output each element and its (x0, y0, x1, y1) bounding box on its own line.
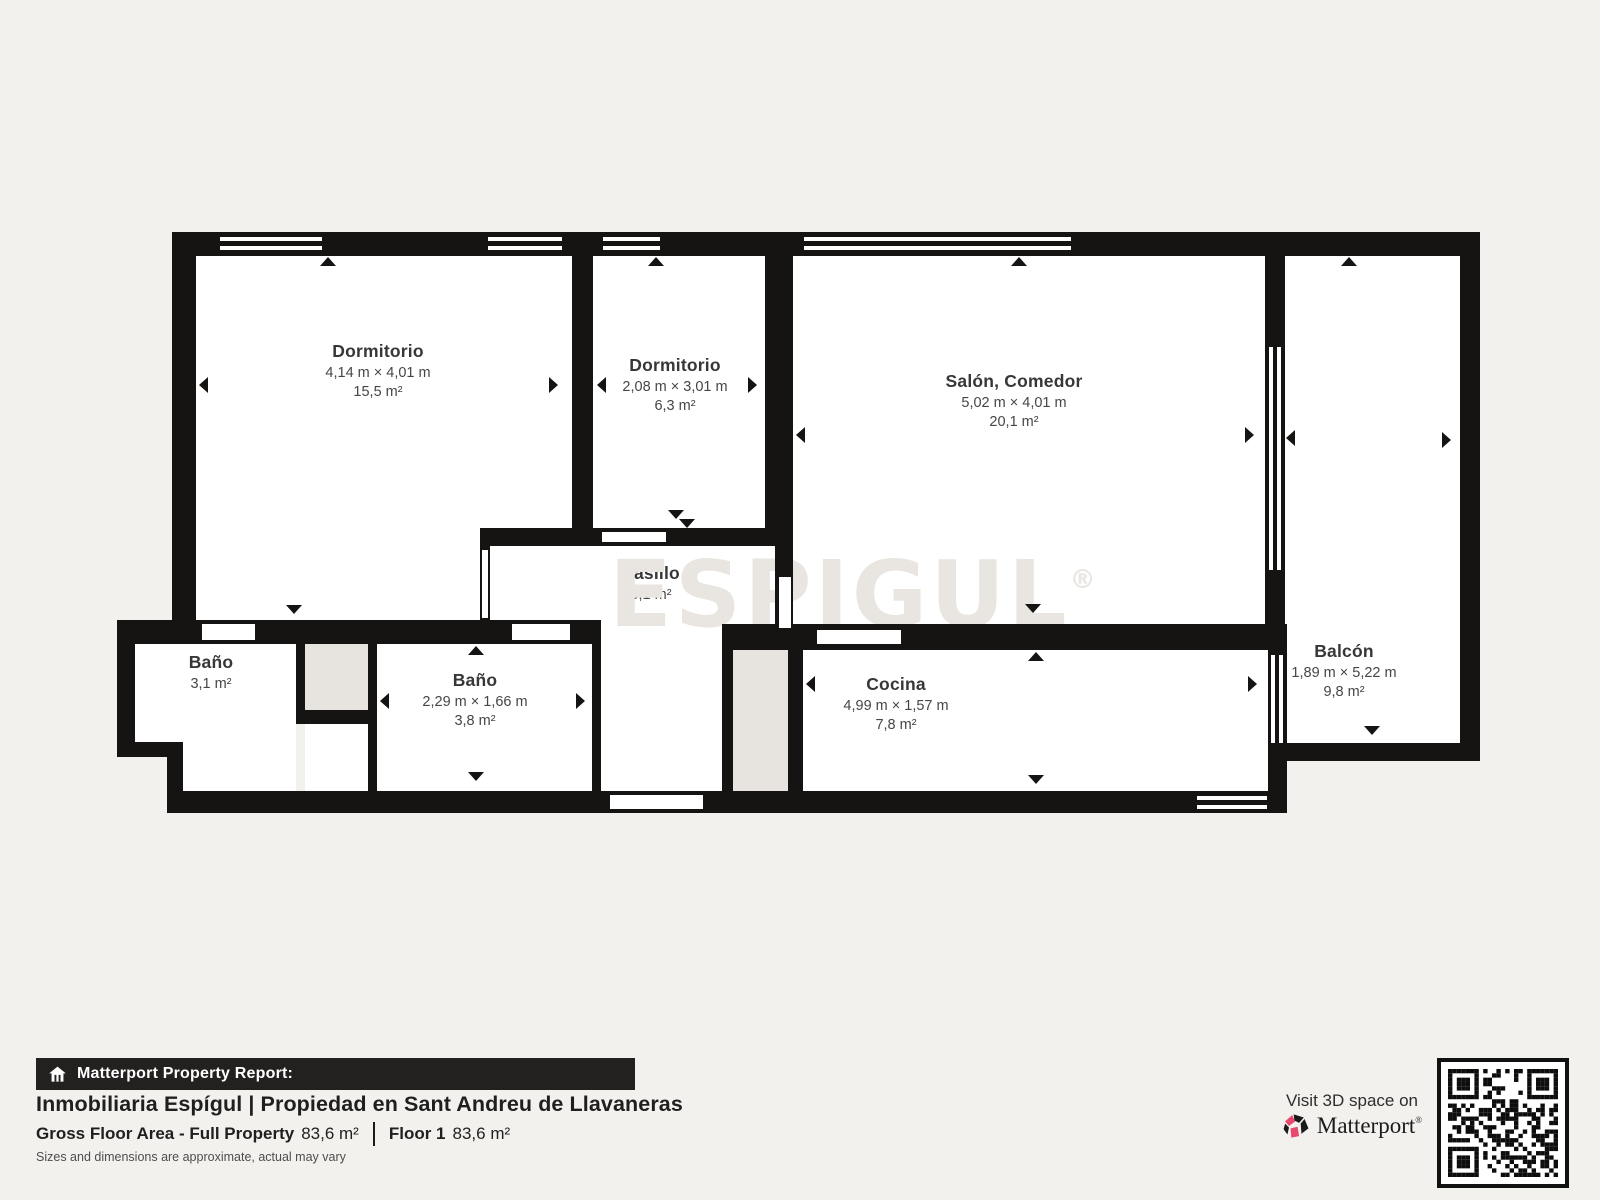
dimension-arrow (679, 519, 695, 528)
dimension-arrow (748, 377, 757, 393)
duct-shaft-2 (733, 650, 788, 791)
disclaimer-text: Sizes and dimensions are approximate, ac… (36, 1150, 346, 1164)
dimension-arrow (1286, 430, 1295, 446)
dimension-arrow (1341, 257, 1357, 266)
dimension-arrow (380, 693, 389, 709)
balcony-sliding-door (1271, 655, 1283, 743)
label-bano-1: Baño 3,1 m² (189, 652, 234, 692)
label-salon-comedor: Salón, Comedor 5,02 m × 4,01 m 20,1 m² (946, 371, 1083, 430)
wall (296, 710, 377, 724)
dimension-arrow (796, 427, 805, 443)
window (1197, 796, 1267, 809)
wall (592, 620, 601, 791)
dimension-arrow (549, 377, 558, 393)
door-opening (815, 628, 903, 646)
wall (167, 791, 1287, 813)
wall (172, 232, 196, 644)
dimension-arrow (1025, 604, 1041, 613)
door-opening (600, 530, 668, 544)
wall (368, 620, 377, 791)
floor-area-line: Gross Floor Area - Full Property 83,6 m²… (36, 1122, 510, 1146)
dimension-arrow (1011, 257, 1027, 266)
dimension-arrow (1028, 652, 1044, 661)
window (1269, 347, 1281, 570)
gross-floor-area-value: 83,6 m² (301, 1124, 359, 1144)
dimension-arrow (1364, 726, 1380, 735)
room-bano-1-nook (305, 724, 368, 791)
wall (117, 620, 135, 757)
gross-floor-area-label: Gross Floor Area - Full Property (36, 1124, 294, 1144)
dimension-arrow (286, 605, 302, 614)
floor1-label: Floor 1 (389, 1124, 446, 1144)
report-bar-label: Matterport Property Report: (77, 1065, 293, 1083)
visit-3d-text: Visit 3D space on (1252, 1091, 1452, 1111)
wall (167, 742, 183, 791)
matterport-floorplan-report: Dormitorio 4,14 m × 4,01 m 15,5 m² Dormi… (0, 0, 1600, 1200)
house-icon (48, 1065, 67, 1084)
door-opening (510, 622, 572, 642)
dimension-arrow (648, 257, 664, 266)
room-bano-1-lower (183, 742, 296, 791)
wall (572, 232, 593, 546)
window (804, 237, 1071, 250)
dimension-arrow (668, 510, 684, 519)
dimension-arrow (468, 772, 484, 781)
dimension-arrow (597, 377, 606, 393)
wall (1460, 232, 1480, 761)
matterport-wordmark: Matterport® (1317, 1113, 1422, 1139)
room-pasillo-corridor (601, 624, 722, 791)
matterport-pinwheel-icon (1282, 1112, 1310, 1140)
matterport-logo: Matterport® (1252, 1112, 1452, 1140)
qr-code (1437, 1058, 1569, 1188)
dimension-arrow (199, 377, 208, 393)
dimension-arrow (320, 257, 336, 266)
dimension-arrow (1248, 676, 1257, 692)
label-cocina: Cocina 4,99 m × 1,57 m 7,8 m² (843, 674, 948, 733)
entry-door-opening (608, 793, 705, 811)
wall (296, 620, 305, 724)
dimension-arrow (468, 646, 484, 655)
dimension-arrow (576, 693, 585, 709)
label-dormitorio-1: Dormitorio 4,14 m × 4,01 m 15,5 m² (325, 341, 430, 400)
window (220, 237, 322, 250)
label-bano-2: Baño 2,29 m × 1,66 m 3,8 m² (422, 670, 527, 729)
label-balcon: Balcón 1,89 m × 5,22 m 9,8 m² (1291, 641, 1396, 700)
wall (765, 232, 793, 546)
property-title: Inmobiliaria Espígul | Propiedad en Sant… (36, 1092, 683, 1117)
report-bar: Matterport Property Report: (36, 1058, 635, 1090)
dimension-arrow (806, 676, 815, 692)
dimension-arrow (1028, 775, 1044, 784)
dimension-arrow (1442, 432, 1451, 448)
divider (373, 1122, 375, 1146)
wall (1280, 743, 1480, 761)
door-opening (200, 622, 257, 642)
floor1-value: 83,6 m² (453, 1124, 511, 1144)
window (488, 237, 562, 250)
window (603, 237, 660, 250)
label-dormitorio-2: Dormitorio 2,08 m × 3,01 m 6,3 m² (622, 355, 727, 414)
duct-shaft-1 (305, 644, 368, 710)
door-opening (777, 575, 793, 630)
dimension-arrow (1245, 427, 1254, 443)
door-opening (480, 548, 490, 620)
